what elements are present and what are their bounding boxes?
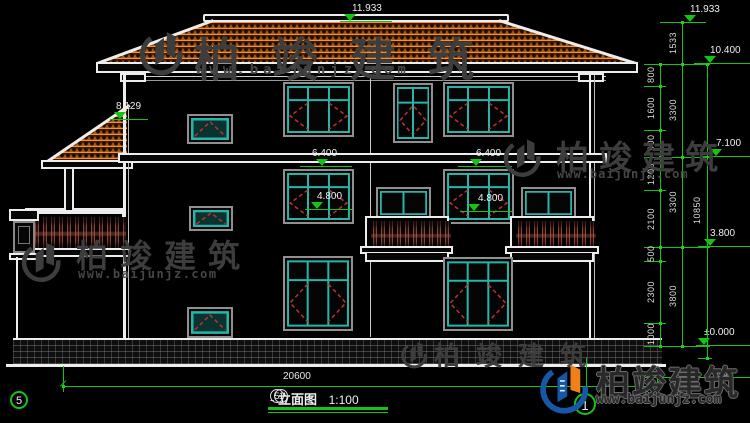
wall-edge-right [589, 73, 591, 338]
balcony-apron-left [365, 253, 449, 262]
dim-seg-1000: 1000 [646, 312, 660, 356]
dim-tick-square [659, 63, 662, 66]
dim-tick-square [659, 246, 662, 249]
grid-bubble-5: 5 [10, 391, 28, 409]
window-1f-center [443, 257, 513, 331]
window-3f-right [443, 82, 514, 137]
watermark-website: www.baijunjz.com [557, 167, 689, 181]
dim-tick-square [681, 63, 684, 66]
dim-tick-square [659, 345, 662, 348]
dim-total-height: 10850 [692, 185, 706, 235]
watermark-website: www.baijunjz.com [196, 62, 411, 78]
watermark-logo-icon [138, 22, 184, 78]
window-glazing [287, 260, 349, 327]
dim-tick-square [706, 63, 709, 66]
balcony-apron-right [510, 253, 594, 262]
elevation-marker-eave: 10.400 [694, 44, 750, 64]
dim-chain-line-outer [707, 64, 708, 358]
watermark-website: www.baijunjz.com [78, 267, 218, 281]
window-glazing [191, 118, 229, 140]
dim-chain-line-mid [682, 22, 683, 346]
elevation-marker-porch-roof: 8.129 [110, 100, 148, 120]
elevation-marker-ground: ±0.000 [696, 326, 750, 346]
drawing-title: 5-1 立面图 1:100 [270, 389, 359, 408]
dim-floor-3300a: 3300 [668, 88, 682, 132]
dim-floor-1533: 1533 [668, 21, 682, 65]
dim-floor-3800: 3800 [668, 274, 682, 318]
elevation-marker-ridge-center: 11.933 [340, 2, 392, 22]
dim-seg-2300: 2300 [646, 270, 660, 314]
window-glazing [191, 311, 229, 334]
elevation-drawing-canvas: 11.933 11.933 10.400 8.129 7.100 6.400 6… [0, 0, 750, 423]
watermark-logo-icon [400, 336, 428, 370]
title-underline-thick [268, 407, 388, 410]
balcony-railing-right [510, 216, 594, 248]
window-3f-left [283, 82, 354, 137]
dim-tick-square [659, 260, 662, 263]
dim-chain-line-inner [660, 64, 661, 346]
elevation-marker-sill-right: 4.800 [460, 192, 512, 212]
company-logo-website: www.baijunjz.com [596, 392, 721, 407]
eave-corner-right [578, 73, 604, 82]
stair-window-2f [189, 206, 233, 231]
window-1f-left [283, 256, 353, 331]
wing-wall-edge [16, 257, 18, 338]
company-logo-icon [538, 353, 590, 417]
dim-floor-3300b: 3300 [668, 180, 682, 224]
watermark-logo-icon [502, 130, 542, 180]
elevation-marker-sill-left: 4.800 [305, 190, 352, 210]
window-glazing [380, 191, 427, 215]
dim-ext-left [63, 366, 64, 392]
window-3f-middle [393, 83, 433, 143]
title-underline-thin [268, 412, 388, 413]
window-glazing [397, 87, 429, 139]
dim-tick-square [681, 246, 684, 249]
window-glazing [287, 86, 350, 133]
wall-edge-left-inner [128, 106, 129, 338]
dim-tick-square [681, 345, 684, 348]
elevation-marker-ridge-right: 11.933 [660, 3, 706, 23]
watermark-company: 柏竣建筑 [194, 24, 506, 90]
dim-tick-square [62, 385, 65, 388]
stair-window-3f [187, 114, 233, 144]
window-glazing [525, 191, 572, 215]
elevation-marker-head-left: 6.400 [300, 147, 352, 167]
porch-column [64, 167, 74, 212]
balcony-door-right [521, 187, 576, 219]
baluster-pattern [516, 221, 596, 249]
dim-tick-square [659, 85, 662, 88]
stair-window-1f [187, 307, 233, 338]
watermark-logo-icon [20, 233, 62, 285]
window-glazing [447, 86, 510, 133]
balcony-door-left [376, 187, 431, 219]
dim-text-total-width: 20600 [283, 371, 311, 382]
dim-tick-square [659, 322, 662, 325]
wall-edge-right-inner [594, 75, 595, 338]
title-scale: 1:100 [329, 393, 359, 407]
window-glazing [447, 261, 509, 327]
balcony-railing-left [365, 216, 449, 248]
dim-tick-square [659, 189, 662, 192]
baluster-pattern [371, 221, 451, 249]
tower-cap [9, 209, 39, 221]
wall-joint-line [370, 75, 371, 337]
dim-tick-square [681, 21, 684, 24]
window-glazing [193, 210, 229, 227]
